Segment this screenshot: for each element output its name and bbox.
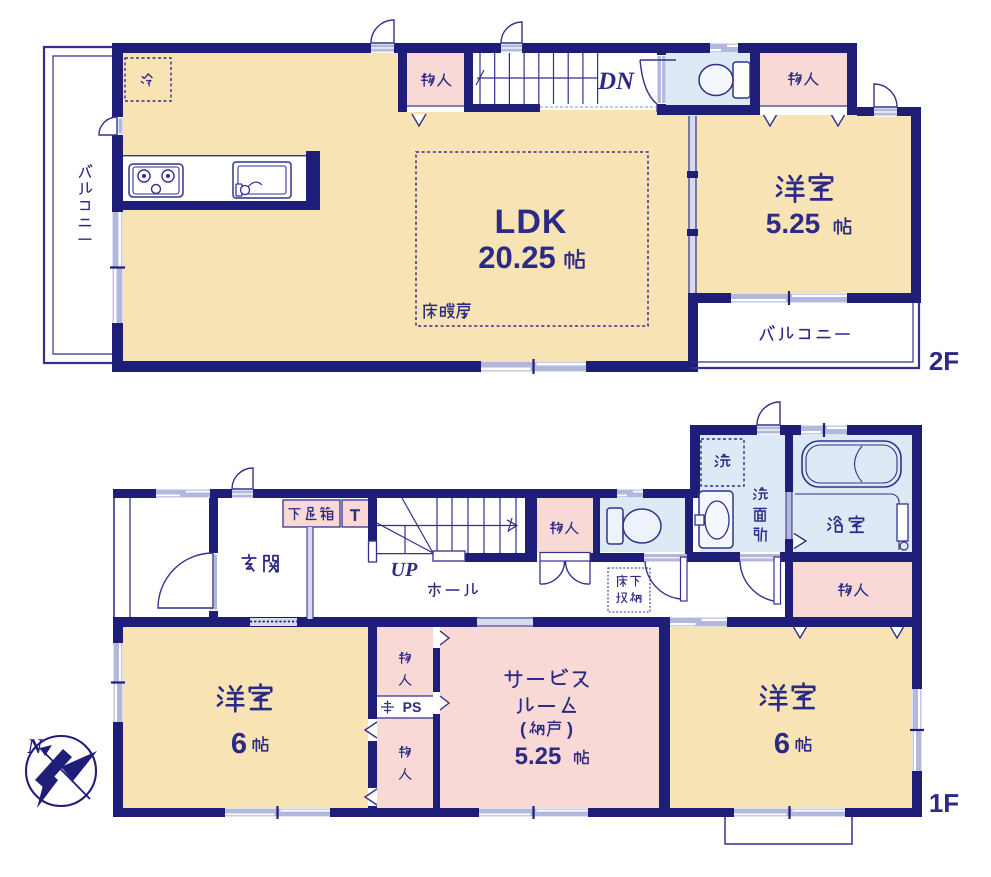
svg-text:2F: 2F	[929, 346, 959, 376]
svg-text:6: 6	[774, 728, 790, 760]
svg-text:5.25: 5.25	[766, 208, 821, 239]
svg-text:DN: DN	[597, 68, 635, 95]
svg-text:(: (	[520, 719, 526, 739]
svg-text:): )	[567, 719, 573, 739]
svg-text:UP: UP	[391, 559, 418, 581]
svg-text:T: T	[350, 506, 361, 525]
svg-text:5.25: 5.25	[515, 743, 562, 770]
svg-text:LDK: LDK	[495, 203, 568, 241]
svg-text:1F: 1F	[929, 788, 959, 818]
svg-text:6: 6	[231, 728, 247, 760]
svg-text:PS: PS	[403, 699, 422, 715]
svg-text:N: N	[26, 734, 43, 758]
svg-text:20.25: 20.25	[478, 240, 556, 275]
